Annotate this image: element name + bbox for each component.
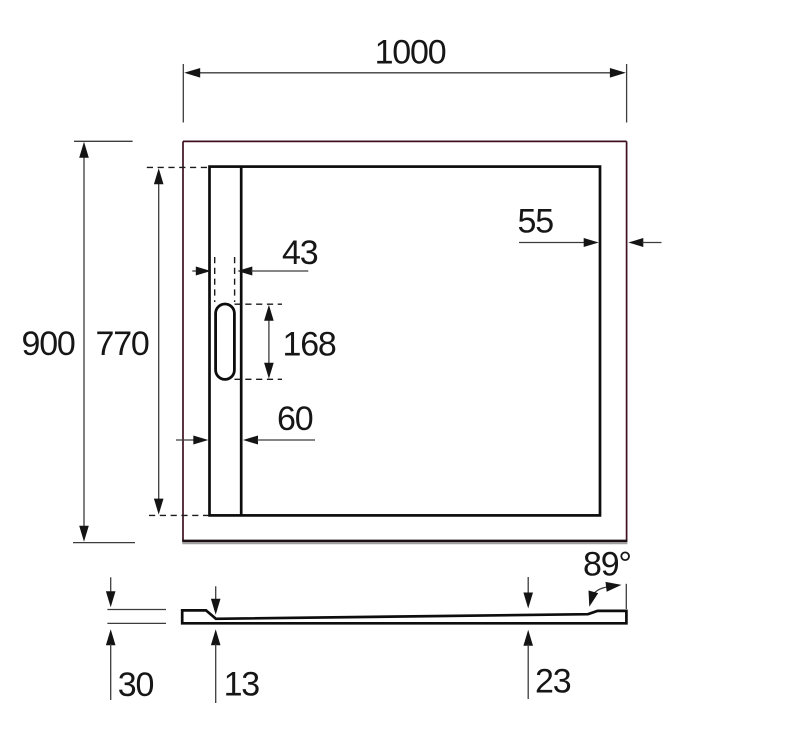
svg-text:900: 900 [22, 325, 75, 363]
svg-text:30: 30 [118, 666, 154, 704]
svg-text:89°: 89° [583, 546, 631, 584]
svg-text:55: 55 [518, 203, 554, 241]
svg-text:43: 43 [282, 234, 318, 272]
svg-text:770: 770 [96, 325, 149, 363]
svg-text:60: 60 [277, 400, 313, 438]
svg-text:23: 23 [535, 663, 571, 701]
svg-text:168: 168 [283, 326, 336, 364]
svg-text:13: 13 [224, 666, 260, 704]
svg-text:1000: 1000 [375, 33, 446, 71]
